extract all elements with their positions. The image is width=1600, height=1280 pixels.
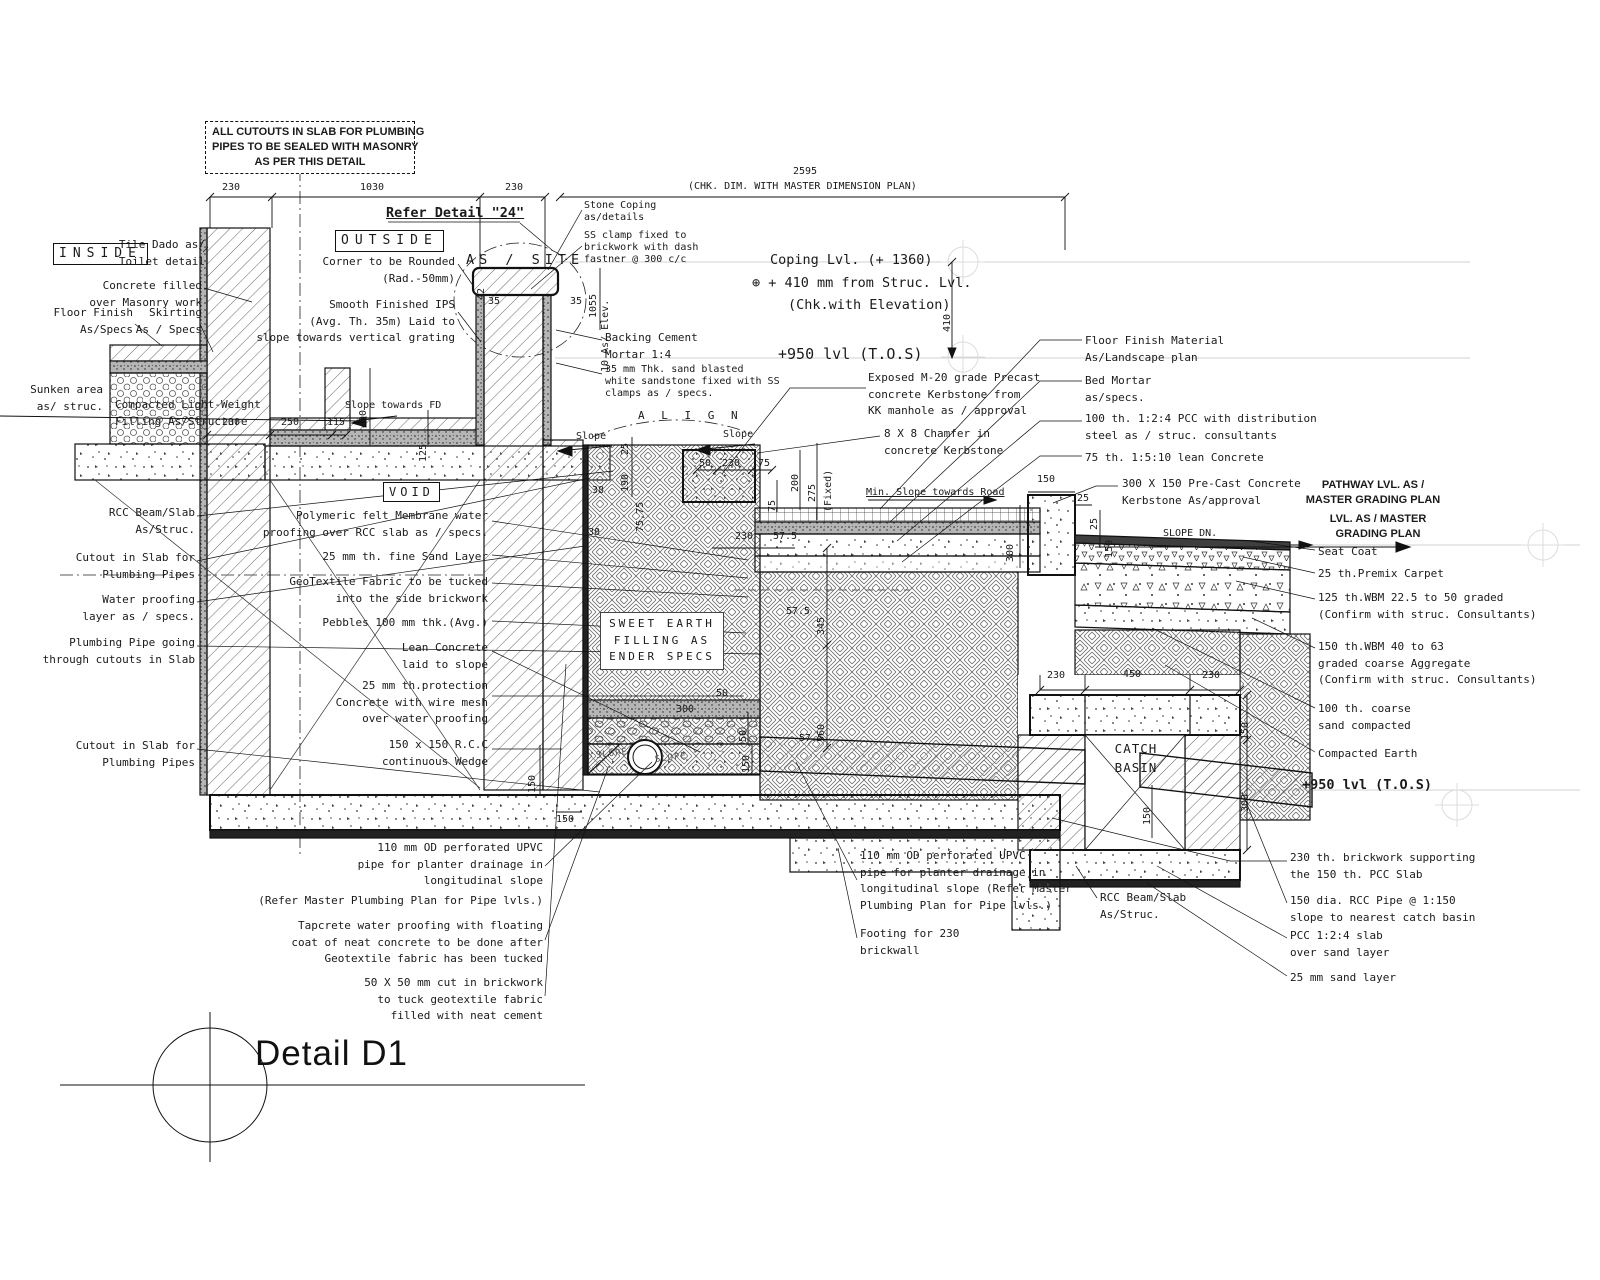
- label-polymeric-felt: Polymeric felt Membrane water proofing o…: [263, 508, 488, 541]
- dim-10-as-elev: 10 As/ Elev.: [600, 300, 612, 372]
- dim-250: 250: [281, 417, 299, 429]
- dim-50-kerb: 50: [699, 458, 711, 470]
- dim-150-s: 150: [556, 814, 574, 826]
- slope-mark-2: Slope: [723, 429, 753, 441]
- label-cutout-2: Cutout in Slab for Plumbing Pipes: [76, 738, 195, 771]
- label-ss-clamp: SS clamp fixed to brickwork with dash fa…: [584, 230, 698, 266]
- dim-230-left: 230: [222, 182, 240, 194]
- dim-42: 42: [476, 288, 488, 300]
- dim-75-75: 75,75: [635, 502, 647, 532]
- dim-300-basin: 300: [1240, 794, 1252, 812]
- label-tile-dado: Tile Dado as/ Toilet detail: [119, 237, 205, 270]
- label-cutout-1: Cutout in Slab for Plumbing Pipes: [76, 550, 195, 583]
- label-rcc-beam-basin: RCC Beam/Slab As/Struc.: [1100, 890, 1186, 923]
- dim-57-b: 57.5: [786, 606, 810, 618]
- label-rcc-wedge: 150 x 150 R.C.C continuous Wedge: [382, 737, 488, 770]
- dim-35-right: 35: [570, 296, 582, 308]
- label-wbm-150: 150 th.WBM 40 to 63 graded coarse Aggreg…: [1318, 639, 1537, 689]
- label-sand-100: 100 th. coarse sand compacted: [1318, 701, 1411, 734]
- label-precast-kerbstone: 300 X 150 Pre-Cast Concrete Kerbstone As…: [1122, 476, 1301, 509]
- label-brickwork-230: 230 th. brickwork supporting the 150 th.…: [1290, 850, 1475, 883]
- label-plumbing-pipe: Plumbing Pipe going through cutouts in S…: [43, 635, 195, 668]
- label-tapcrete: Tapcrete water proofing with floating co…: [291, 918, 543, 968]
- coping-level: Coping Lvl. (+ 1360): [770, 250, 933, 270]
- label-exposed-kerbstone: Exposed M-20 grade Precast concrete Kerb…: [868, 370, 1040, 420]
- label-skirting: Skirting As / Specs: [136, 305, 202, 338]
- label-wbm-125: 125 th.WBM 22.5 to 50 graded (Confirm wi…: [1318, 590, 1537, 623]
- label-smooth-ips: Smooth Finished IPS (Avg. Th. 35m) Laid …: [256, 297, 455, 347]
- catch-basin-label: CATCH BASIN: [1098, 740, 1174, 778]
- align-mark: A L I G N: [638, 408, 743, 425]
- dim-150-pipe: 150: [1142, 807, 1154, 825]
- label-geotextile: GeoTextile Fabric to be tucked into the …: [289, 574, 488, 607]
- dim-230-kerb: 230: [722, 458, 740, 470]
- dim-fixed: (Fixed): [823, 470, 835, 512]
- chk-dim-note: (CHK. DIM. WITH MASTER DIMENSION PLAN): [688, 181, 917, 193]
- dim-25-kerbstone: 25: [1077, 493, 1089, 505]
- label-seat-coat: Seat Coat: [1318, 544, 1378, 561]
- dim-150-wedge: 150: [527, 775, 539, 793]
- slope-dn-mark: SLOPE DN.: [1163, 528, 1217, 540]
- dim-410: 410: [942, 314, 954, 332]
- label-upvc-refer: (Refer Master Plumbing Plan for Pipe lvl…: [258, 893, 543, 910]
- struct-level: ⊕ + 410 mm from Struc. Lvl.: [752, 273, 971, 293]
- dim-230-d: 230: [735, 531, 753, 543]
- label-upvc-pipe-1: 110 mm OD perforated UPVC pipe for plant…: [358, 840, 543, 890]
- dim-57-a: 57.5: [773, 531, 797, 543]
- lvl-master-note: LVL. AS / MASTER GRADING PLAN: [1313, 512, 1443, 542]
- as-site-label: AS / SITE: [466, 250, 584, 270]
- dim-300-p: 300: [676, 704, 694, 716]
- label-lean-75: 75 th. 1:5:10 lean Concrete: [1085, 450, 1264, 467]
- label-sunken-area: Sunken area as/ struc.: [30, 382, 103, 415]
- label-pcc-slab: PCC 1:2:4 slab over sand layer: [1290, 928, 1389, 961]
- pathway-level-note: PATHWAY LVL. AS / MASTER GRADING PLAN: [1298, 478, 1448, 508]
- label-sand-layer-25: 25 mm sand layer: [1290, 970, 1396, 987]
- label-backing-mortar: Backing Cement Mortar 1:4: [605, 330, 698, 363]
- label-pebbles: Pebbles 100 mm thk.(Avg.): [322, 615, 488, 632]
- dim-38-a: 38: [592, 485, 604, 497]
- label-lean-concrete: Lean Concrete laid to slope: [402, 640, 488, 673]
- dim-57-c: 57.5: [799, 733, 823, 745]
- label-floor-finish-material: Floor Finish Material As/Landscape plan: [1085, 333, 1224, 366]
- label-stone-coping: Stone Coping as/details: [584, 200, 656, 224]
- label-sandstone: 35 mm Thk. sand blasted white sandstone …: [605, 364, 780, 400]
- dim-230-basin-l: 230: [1047, 670, 1065, 682]
- tos-level: +950 lvl (T.O.S): [778, 343, 923, 366]
- label-premix-carpet: 25 th.Premix Carpet: [1318, 566, 1444, 583]
- dim-2595: 2595: [770, 166, 840, 178]
- dim-345: 345: [816, 617, 828, 635]
- label-brick-cut: 50 X 50 mm cut in brickwork to tuck geot…: [364, 975, 543, 1025]
- dim-25-k2: 25: [1089, 518, 1101, 530]
- dim-450-basin: 450: [1123, 669, 1141, 681]
- dim-190: 190: [620, 474, 632, 492]
- label-waterproofing: Water proofing layer as / specs.: [82, 592, 195, 625]
- dim-1055: 1055: [588, 294, 600, 318]
- dim-50-b: 50: [716, 688, 728, 700]
- tos-level-right: +950 lvl (T.O.S): [1302, 775, 1432, 795]
- dim-300-kv: 300: [1005, 544, 1017, 562]
- dim-150-kerbstone: 150: [1037, 474, 1055, 486]
- label-chamfer: 8 X 8 Chamfer in concrete Kerbstone: [884, 426, 1003, 459]
- dim-75-b: 75: [767, 500, 779, 512]
- label-rcc-pipe-150: 150 dia. RCC Pipe @ 1:150 slope to neare…: [1290, 893, 1475, 926]
- label-rcc-beam-left: RCC Beam/Slab As/Struc.: [109, 505, 195, 538]
- label-protection-concrete: 25 mm th.protection Concrete with wire m…: [336, 678, 488, 728]
- plumbing-note: ALL CUTOUTS IN SLAB FOR PLUMBING PIPES T…: [205, 121, 415, 174]
- dim-400: 400: [358, 410, 370, 428]
- label-compacted-earth: Compacted Earth: [1318, 746, 1417, 763]
- label-sand-layer: 25 mm th. fine Sand Layer: [322, 549, 488, 566]
- sweet-earth-label: SWEET EARTH FILLING AS ENDER SPECS: [600, 612, 724, 670]
- label-floor-finish: Floor Finish As/Specs: [54, 305, 133, 338]
- dim-125: 125: [418, 444, 430, 462]
- label-footing: Footing for 230 brickwall: [860, 926, 959, 959]
- dim-150-p: 150: [741, 755, 753, 773]
- dim-230-basin-r: 230: [1202, 670, 1220, 682]
- dim-115: 115: [327, 417, 345, 429]
- label-pcc-100: 100 th. 1:2:4 PCC with distribution stee…: [1085, 411, 1317, 444]
- outside-label: OUTSIDE: [335, 230, 444, 252]
- chk-elevation: (Chk.with Elevation): [788, 295, 951, 315]
- dim-150-kv: 150: [1104, 540, 1116, 558]
- drawing-sheet: ALL CUTOUTS IN SLAB FOR PLUMBING PIPES T…: [0, 0, 1600, 1280]
- label-bed-mortar: Bed Mortar as/specs.: [1085, 373, 1151, 406]
- dim-200: 200: [790, 474, 802, 492]
- dim-75-kerb: 75: [758, 458, 770, 470]
- void-label: VOID: [383, 482, 440, 502]
- dim-1030: 1030: [360, 182, 384, 194]
- label-upvc-pipe-2: 110 mm OD perforated UPVC pipe for plant…: [860, 848, 1072, 914]
- dim-230-right: 230: [505, 182, 523, 194]
- dim-38-b: 38: [588, 527, 600, 539]
- dim-35-left: 35: [488, 296, 500, 308]
- dim-275: 275: [807, 484, 819, 502]
- detail-title: Detail D1: [255, 1028, 408, 1081]
- dim-25-v: 25: [620, 443, 632, 455]
- dim-150-basin: 150: [1240, 722, 1252, 740]
- min-slope-note: Min. Slope towards Road: [866, 487, 1004, 499]
- dim-230-wall: 230: [222, 417, 240, 429]
- refer-detail-note: Refer Detail "24": [386, 203, 524, 223]
- slope-mark-1: Slope: [576, 431, 606, 443]
- label-corner-rounded: Corner to be Rounded (Rad.-50mm): [323, 254, 455, 287]
- dim-50-c: 50: [738, 730, 750, 742]
